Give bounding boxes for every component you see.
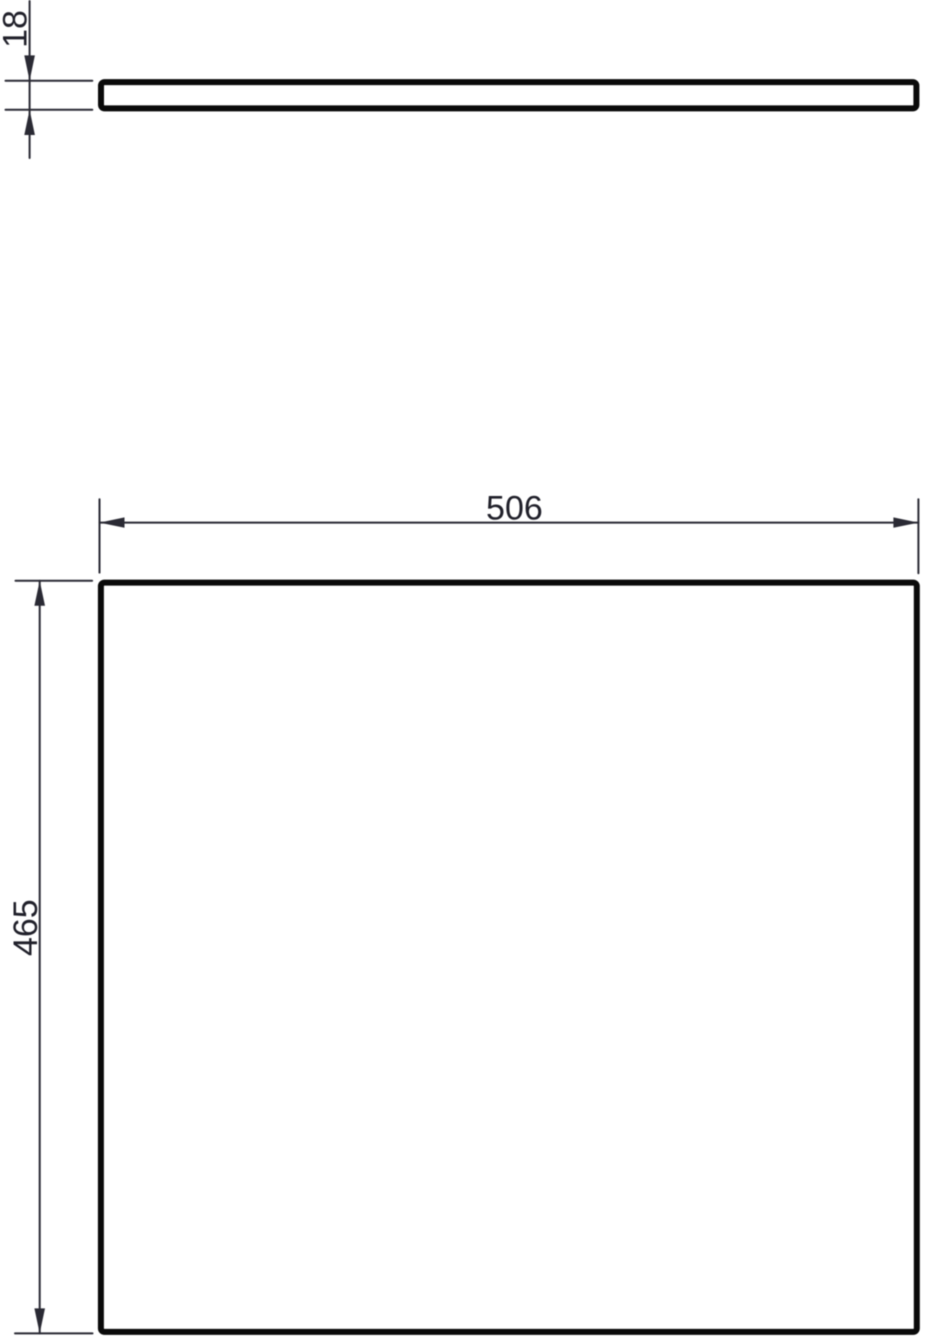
svg-text:18: 18 xyxy=(0,10,35,48)
svg-text:506: 506 xyxy=(486,490,543,528)
svg-text:465: 465 xyxy=(7,899,45,956)
